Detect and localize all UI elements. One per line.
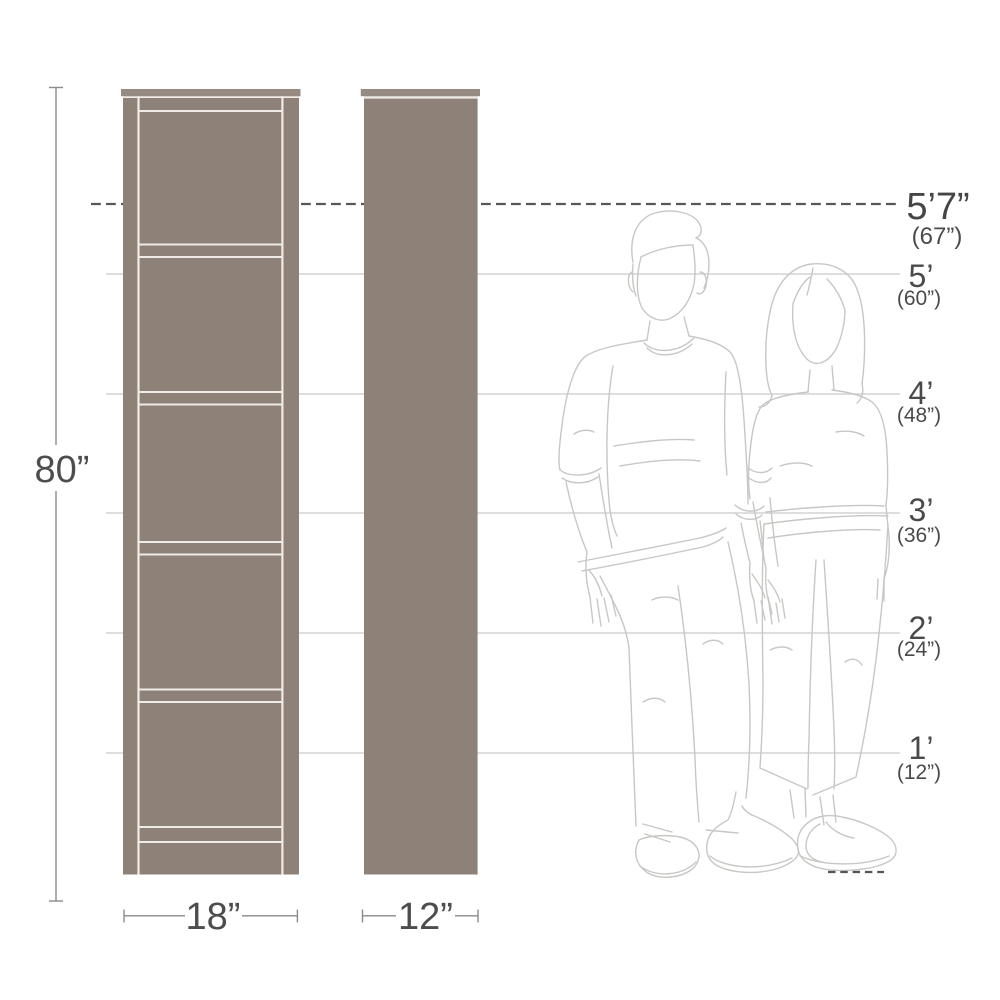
svg-text:5’7”: 5’7”	[906, 186, 969, 228]
svg-text:(48”): (48”)	[897, 404, 941, 427]
svg-text:12”: 12”	[398, 896, 453, 938]
svg-text:(60”): (60”)	[897, 287, 941, 310]
svg-text:(36”): (36”)	[897, 524, 941, 547]
svg-text:3’: 3’	[909, 492, 934, 528]
svg-text:(67”): (67”)	[912, 223, 963, 250]
svg-text:(24”): (24”)	[897, 638, 941, 661]
svg-text:18”: 18”	[186, 896, 241, 938]
svg-text:80”: 80”	[35, 449, 90, 491]
svg-text:(12”): (12”)	[897, 761, 941, 784]
